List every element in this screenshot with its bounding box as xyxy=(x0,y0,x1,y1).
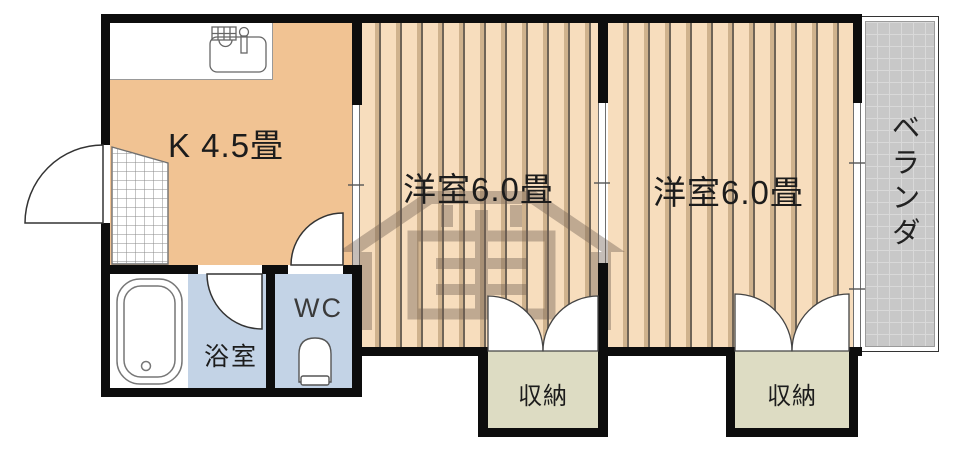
storage-1-label: 収納 xyxy=(488,376,598,411)
western-room-2-label: 洋室6.0畳 xyxy=(653,166,804,214)
wc-label: WC xyxy=(294,293,343,324)
kitchen-sink-icon xyxy=(210,27,266,72)
bathroom-door-arc xyxy=(207,274,262,329)
entrance-door-arc xyxy=(25,145,103,223)
genkan-tile-area xyxy=(112,147,168,264)
closet-double-door-arcs xyxy=(488,294,849,351)
toilet-icon xyxy=(299,338,331,385)
veranda-label: ベランダ xyxy=(882,112,924,252)
storage-2-label: 収納 xyxy=(735,376,849,411)
floorplan-canvas: K 4.5畳 洋室6.0畳 洋室6.0畳 浴室 WC 収納 収納 ベランダ xyxy=(0,0,960,456)
kitchen-label: K 4.5畳 xyxy=(168,119,284,167)
bathroom-label: 浴室 xyxy=(204,337,258,373)
wc-door-arc xyxy=(291,213,343,265)
western-room-1-label: 洋室6.0畳 xyxy=(403,163,554,211)
bathtub-icon xyxy=(117,279,182,384)
